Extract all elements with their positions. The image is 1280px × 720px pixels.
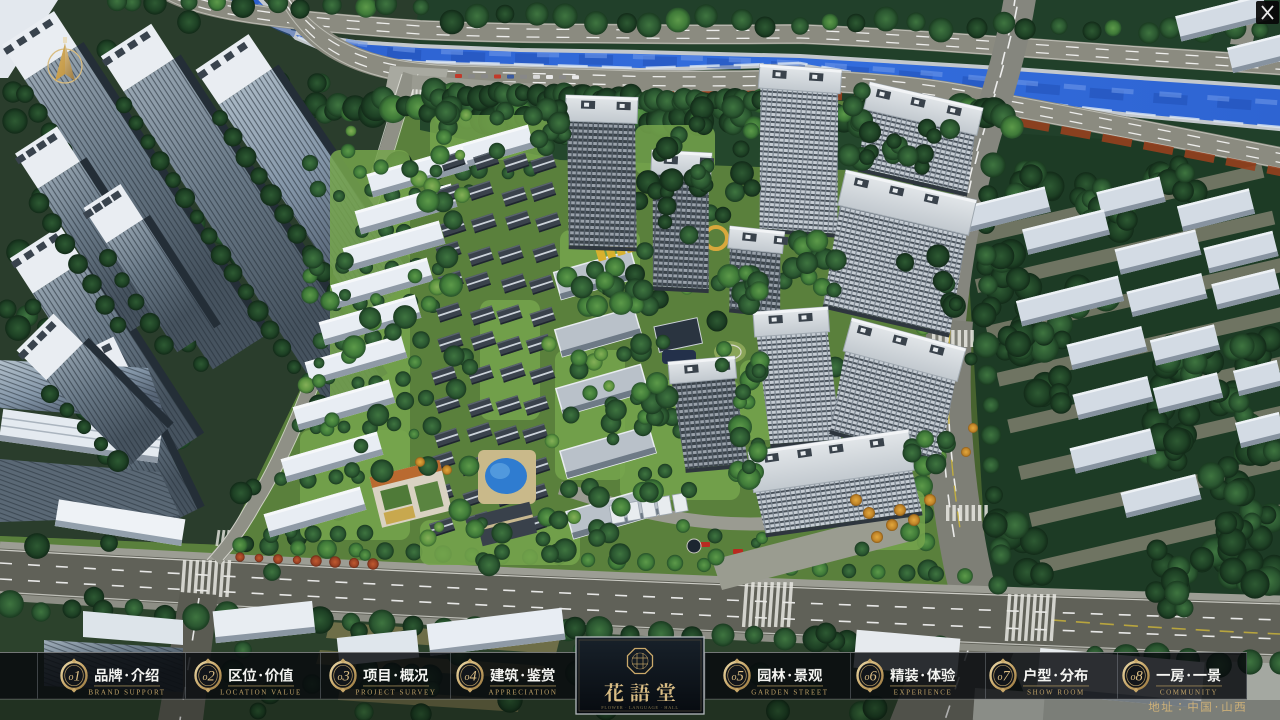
svg-text:SHOW ROOM: SHOW ROOM (1027, 689, 1085, 697)
svg-text:COMMUNITY: COMMUNITY (1160, 689, 1218, 697)
svg-text:3: 3 (342, 669, 350, 685)
svg-text:2: 2 (208, 669, 215, 685)
svg-text:APPRECIATION: APPRECIATION (489, 689, 558, 697)
svg-text:8: 8 (1136, 669, 1144, 685)
svg-text:GARDEN STREET: GARDEN STREET (751, 689, 828, 697)
svg-text:PROJECT SURVEY: PROJECT SURVEY (355, 689, 436, 697)
svg-text:6: 6 (870, 669, 878, 685)
svg-text:LOCATION VALUE: LOCATION VALUE (220, 689, 302, 697)
svg-text:5: 5 (737, 669, 744, 685)
svg-text:EXPERIENCE: EXPERIENCE (894, 689, 953, 697)
svg-text:1: 1 (74, 669, 81, 685)
svg-text:4: 4 (470, 669, 477, 685)
svg-text:7: 7 (1003, 669, 1011, 685)
svg-text:FLOWER · LANGUAGE · HALL: FLOWER · LANGUAGE · HALL (601, 705, 678, 710)
svg-text:BRAND SUPPORT: BRAND SUPPORT (88, 689, 165, 697)
